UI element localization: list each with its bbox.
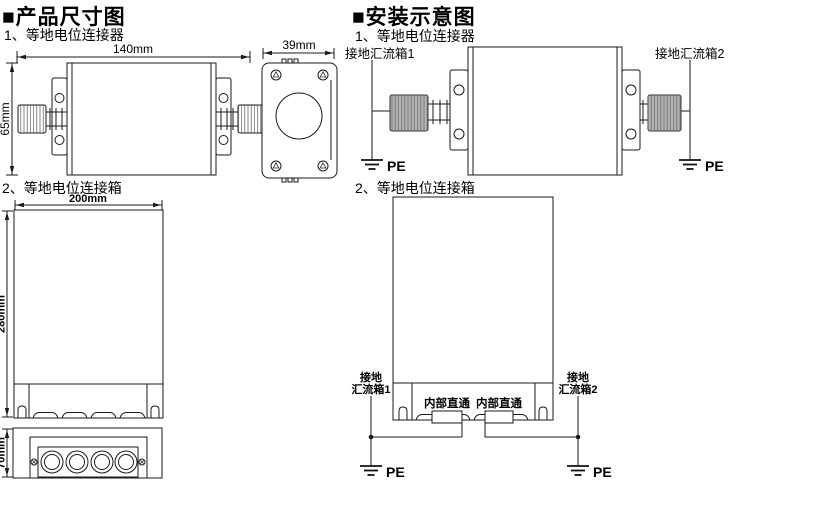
jumper-label-2: 内部直通 [476,396,522,410]
box-body [393,197,553,420]
pe-label: PE [593,464,612,480]
dim-280mm: 280mm [0,211,13,417]
pe-label: PE [386,464,405,480]
earth-symbol [679,160,701,169]
bus-box1-label: 接地汇流箱1 [345,46,415,61]
right-ground-wire: PE [679,60,724,174]
box-bottom-view [13,428,162,478]
connector-body [468,47,622,175]
left-terminal-knob [390,95,450,131]
bus-box1-label: 接地 汇流箱1 [351,370,390,396]
document-page: ■产品尺寸图 ■安装示意图 1、等地电位连接器 2、等地电位连接箱 1、等地电位… [0,0,840,515]
box-front-view [14,210,163,418]
svg-text:接地: 接地 [567,370,589,384]
right-terminal-knob [640,95,681,131]
bus-box2-label: 接地汇流箱2 [655,46,725,61]
dim-65mm: 65mm [0,63,18,175]
junction-dot [369,435,374,440]
earth-symbol [567,466,589,475]
svg-text:汇流箱2: 汇流箱2 [558,382,597,396]
svg-text:接地: 接地 [360,370,382,384]
dim-200mm-label: 200mm [69,193,107,205]
earth-symbol [361,160,383,169]
box-installation-diagram: 内部直通 内部直通 接地 汇流箱1 接地 汇流箱2 PE [340,196,640,496]
box-dimension-drawing: 200mm 280mm [0,196,175,496]
connector-body [67,63,216,175]
dim-39mm-label: 39mm [282,38,315,52]
dim-70mm-label: 70mm [0,437,8,469]
dim-70mm: 70mm [0,429,13,477]
bus-box2-label: 接地 汇流箱2 [558,370,597,396]
dim-280mm-label: 280mm [0,295,8,333]
dim-140mm: 140mm [17,42,250,63]
dim-140mm-label: 140mm [113,42,153,56]
dim-39mm: 39mm [263,38,334,59]
pe-label: PE [705,158,724,174]
earth-symbol [360,466,382,475]
connector-side-view [262,59,337,182]
connector-installation-diagram: 接地汇流箱1 接地汇流箱2 PE PE [340,42,740,182]
junction-dot [576,435,581,440]
jumper-label-1: 内部直通 [424,396,470,410]
dim-65mm-label: 65mm [0,102,12,135]
pe-label: PE [387,158,406,174]
dim-200mm: 200mm [15,193,162,210]
svg-text:汇流箱1: 汇流箱1 [351,382,390,396]
connector-dimension-drawing: 140mm 65mm [0,40,345,190]
